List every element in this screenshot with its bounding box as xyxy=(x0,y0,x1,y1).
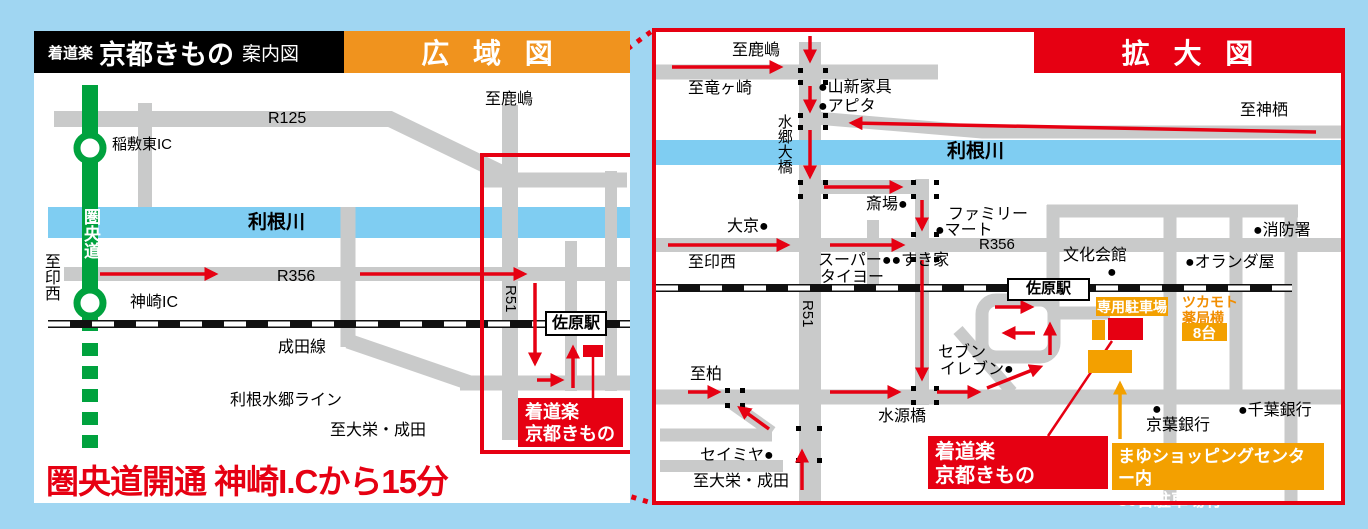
shop-name-line1: 着道楽 xyxy=(525,402,616,424)
road-diagonal-suigo xyxy=(348,341,470,383)
kozaki-ic-circle xyxy=(77,290,103,316)
pharmacy-line1: ツカモト xyxy=(1182,294,1238,310)
parking-lot-mayu xyxy=(1088,350,1132,373)
label-suigenbashi-bridge: 水源橋 xyxy=(878,408,926,426)
label-to-kamisu: 至神栖 xyxy=(1240,102,1288,120)
label-tone-river: 利根川 xyxy=(947,141,1004,162)
shop-name-line1: 着道楽 xyxy=(935,440,1101,464)
access-note: 圏央道開通 神崎I.Cから15分 xyxy=(46,455,448,503)
label-fire-station: ●消防署 xyxy=(1253,222,1311,240)
private-parking-badge: 専用駐車場 xyxy=(1096,297,1168,316)
label-seimiya: セイミヤ● xyxy=(700,447,774,465)
mayu-line1: まゆショッピングセンター内 xyxy=(1118,446,1318,490)
detail-map-title: 拡大図 xyxy=(1098,32,1277,72)
label-oranda-ya: ●オランダ屋 xyxy=(1185,254,1275,272)
brand-title-bar: 着道楽 京都きもの 案内図 xyxy=(34,31,344,73)
shop-location-marker xyxy=(1108,318,1143,340)
label-to-inzai: 至印西 xyxy=(688,254,736,272)
mayu-line2: 30台駐車場有 xyxy=(1118,490,1318,512)
label-to-taiei-narita: 至大栄・成田 xyxy=(330,422,426,440)
label-to-inzai: 至印西 xyxy=(41,253,59,301)
label-route-r51: R51 xyxy=(501,285,518,313)
shop-location-marker xyxy=(583,345,603,357)
label-kozaki-ic: 神崎IC xyxy=(130,294,178,312)
label-inashiki-higashi-ic: 稲敷東IC xyxy=(112,137,172,154)
label-suigo-ohashi-bridge: 水郷大橋 xyxy=(775,114,792,174)
shop-name-line2: 京都きもの xyxy=(935,464,1101,488)
shop-label-box: 着道楽 京都きもの xyxy=(518,398,623,447)
parking-lot-small xyxy=(1092,320,1105,340)
tone-river xyxy=(48,207,630,238)
detail-map-panel: 拡大図 至鹿嶋至竜ヶ崎●山新家具●アピタ至神栖水郷大橋利根川斎場●ファミリー●マ… xyxy=(652,28,1345,505)
label-route-r51: R51 xyxy=(798,300,815,328)
brand-name-small: 着道楽 xyxy=(48,42,93,63)
label-to-kashiwa: 至柏 xyxy=(690,366,722,384)
label-saijo: 斎場● xyxy=(866,196,908,214)
label-narita-line: 成田線 xyxy=(278,339,326,357)
label-tone-suigo-line: 利根水郷ライン xyxy=(230,392,342,410)
label-apita: ●アピタ xyxy=(818,98,876,116)
label-to-tatsugasaki: 至竜ヶ崎 xyxy=(688,80,752,98)
label-route-r356: R356 xyxy=(979,237,1015,254)
label-sawara-station: 佐原駅 xyxy=(1007,278,1090,301)
label-daikyo: 大京● xyxy=(727,218,769,236)
pharmacy-8-cars-badge: 8台 xyxy=(1182,323,1227,341)
label-super-taiyo-sukiya: スーパー●●すき家 xyxy=(818,252,949,270)
label-to-taiei-narita: 至大栄・成田 xyxy=(693,473,789,491)
label-to-kashima: 至鹿嶋 xyxy=(732,42,780,60)
wide-map-title-bar: 広域図 xyxy=(344,31,630,73)
label-seven-eleven-1: セブン xyxy=(938,344,986,362)
label-yamashin-furniture: ●山新家具 xyxy=(818,79,892,97)
label-super-taiyo-2: タイヨー xyxy=(820,269,884,287)
wide-area-map-panel: 着道楽 京都きもの 案内図 広域図 至鹿嶋R125稲敷東IC圏央道利根川至印西R… xyxy=(34,31,630,503)
brand-name-large: 京都きもの xyxy=(99,33,234,72)
access-map-flyer: 着道楽 京都きもの 案内図 広域図 至鹿嶋R125稲敷東IC圏央道利根川至印西R… xyxy=(0,0,1368,529)
brand-title-suffix: 案内図 xyxy=(242,39,299,66)
shop-label-box: 着道楽 京都きもの xyxy=(928,436,1108,489)
label-seven-eleven-2: イレブン● xyxy=(940,361,1014,379)
label-to-kashima: 至鹿嶋 xyxy=(485,91,533,109)
label-chiba-bank: ●千葉銀行 xyxy=(1238,402,1312,420)
label-route-r125: R125 xyxy=(268,110,306,128)
mayu-shopping-center-box: まゆショッピングセンター内 30台駐車場有 xyxy=(1112,443,1324,490)
label-keiyo-bank: 京葉銀行 xyxy=(1146,417,1210,435)
inashiki-higashi-ic-circle xyxy=(77,135,103,161)
label-route-r356: R356 xyxy=(277,268,315,286)
label-bunka-kaikan: 文化会館 xyxy=(1063,247,1127,265)
label-sawara-station: 佐原駅 xyxy=(545,311,607,336)
label-bunka-kaikan-dot: ● xyxy=(1107,264,1117,282)
label-kenodo-expressway: 圏央道 xyxy=(81,208,100,259)
label-tone-river: 利根川 xyxy=(248,212,305,233)
detail-map-title-bar: 拡大図 xyxy=(1034,31,1341,73)
wide-map-title: 広域図 xyxy=(397,32,576,72)
shop-name-line2: 京都きもの xyxy=(525,424,616,446)
